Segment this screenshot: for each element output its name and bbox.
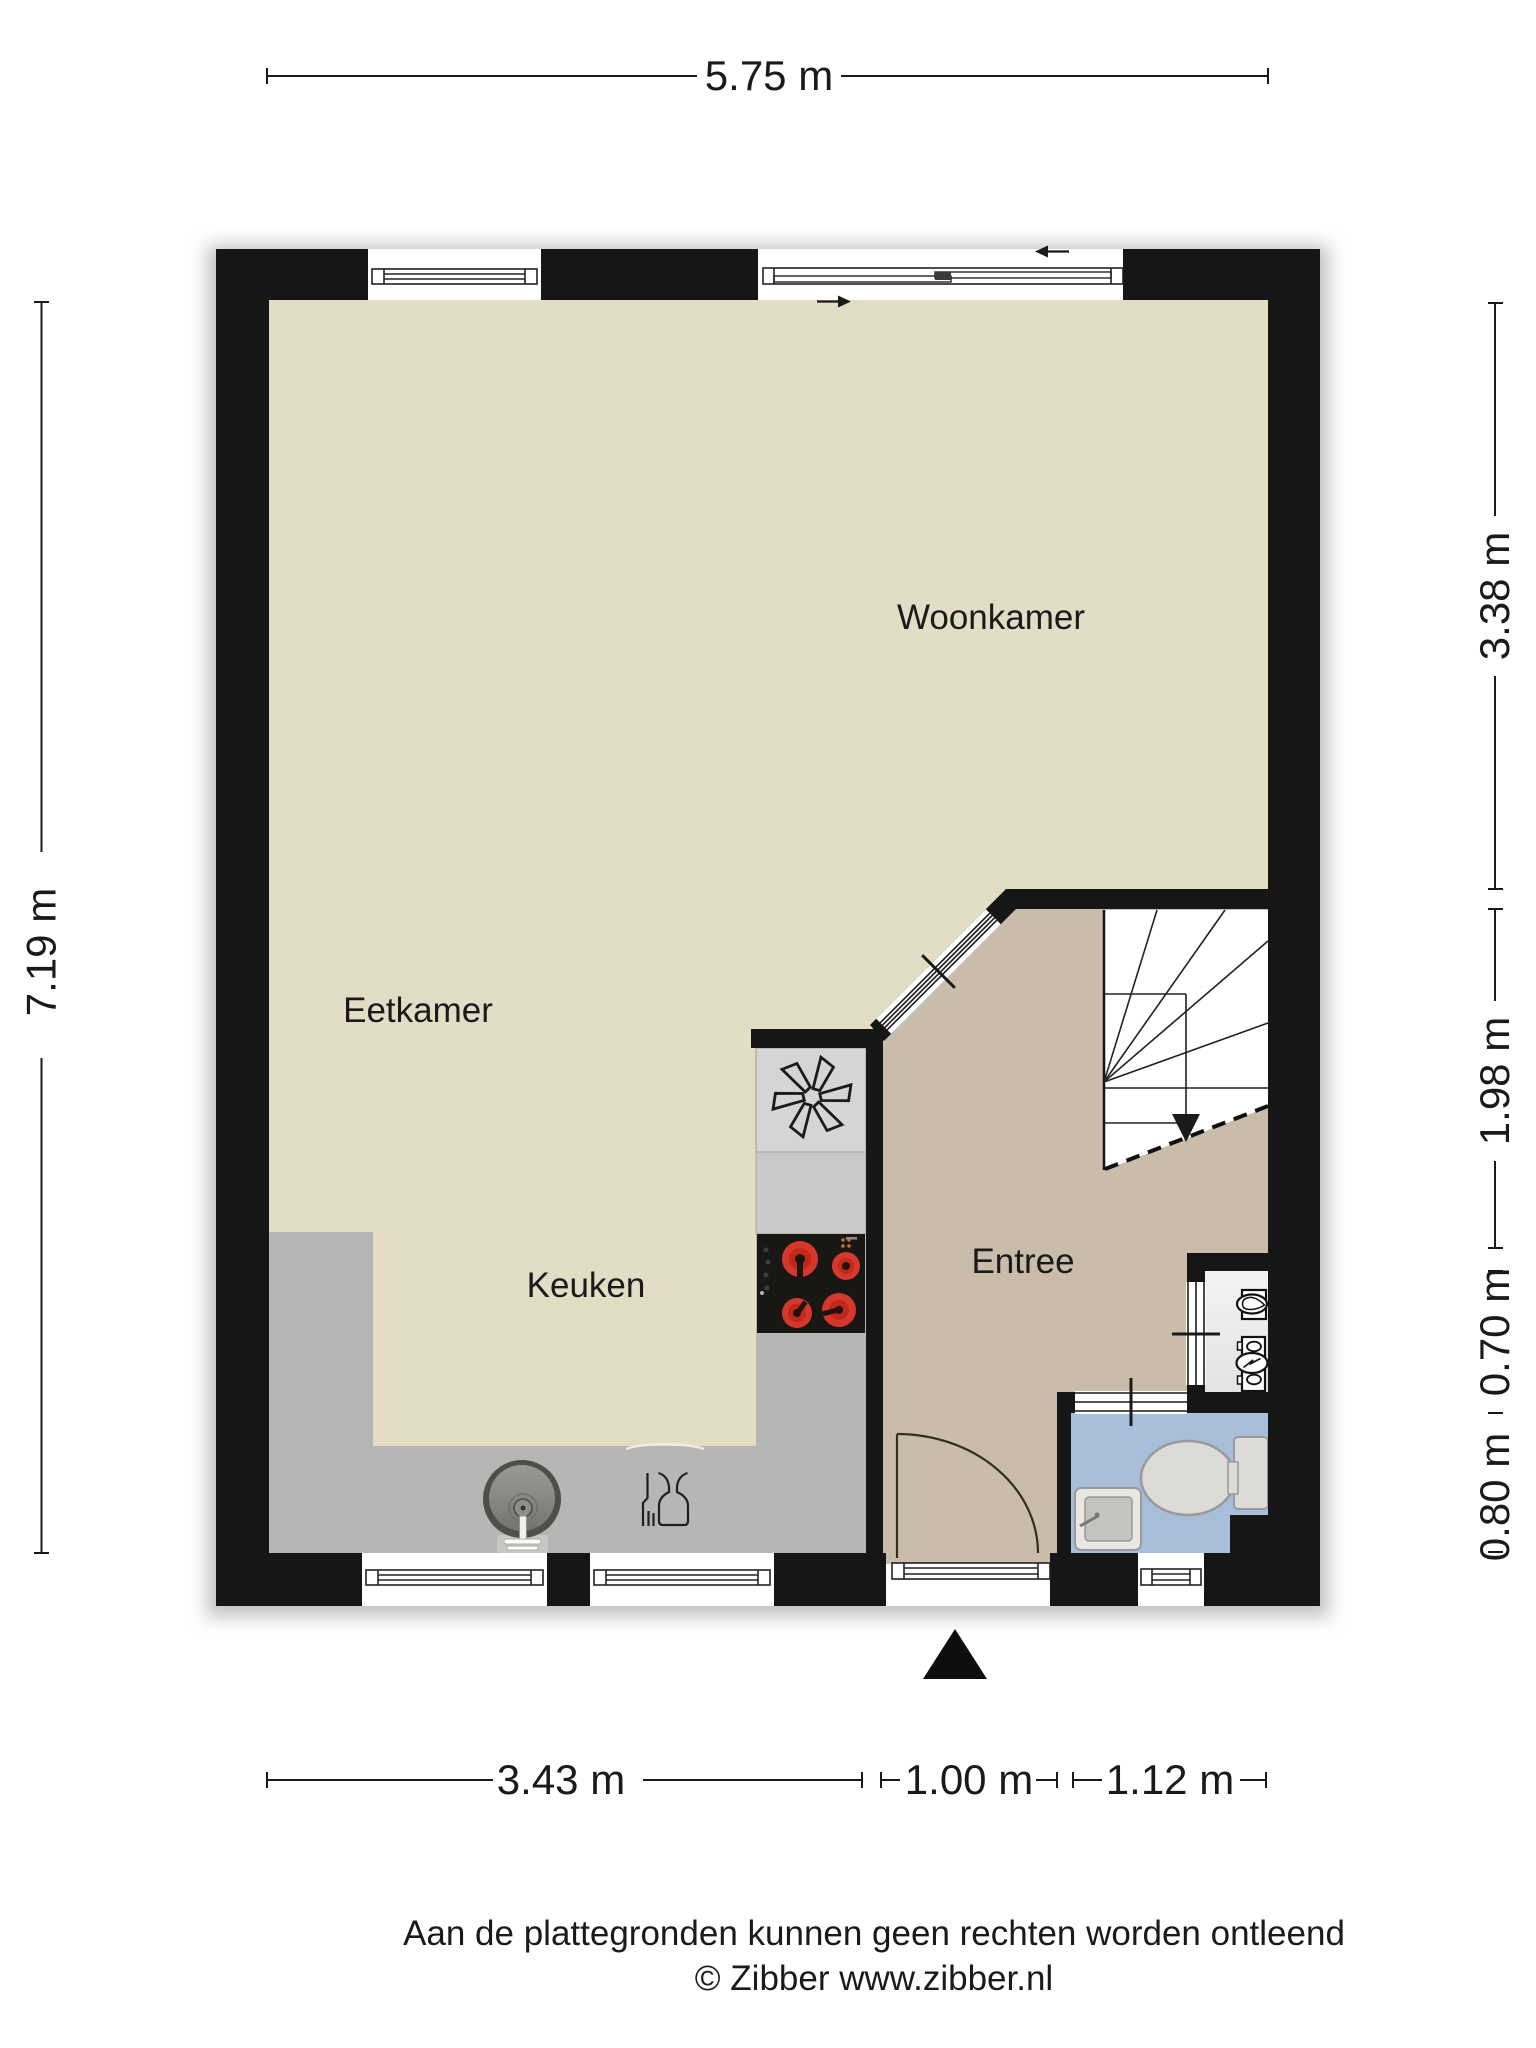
svg-text:3.38 m: 3.38 m xyxy=(1471,532,1518,660)
svg-text:1.98 m: 1.98 m xyxy=(1471,1017,1518,1145)
svg-text:3.43 m: 3.43 m xyxy=(497,1756,625,1803)
svg-text:Entree: Entree xyxy=(971,1242,1074,1281)
svg-text:Woonkamer: Woonkamer xyxy=(897,598,1085,637)
svg-text:5.75 m: 5.75 m xyxy=(705,52,833,99)
svg-text:Aan de plattegronden kunnen ge: Aan de plattegronden kunnen geen rechten… xyxy=(403,1914,1345,1953)
svg-text:1.12 m: 1.12 m xyxy=(1106,1756,1234,1803)
svg-text:7.19 m: 7.19 m xyxy=(18,888,65,1016)
svg-text:0.80 m: 0.80 m xyxy=(1471,1433,1518,1561)
svg-text:© Zibber www.zibber.nl: © Zibber www.zibber.nl xyxy=(695,1959,1053,1998)
svg-text:Keuken: Keuken xyxy=(527,1266,646,1305)
svg-text:0.70 m: 0.70 m xyxy=(1471,1268,1518,1396)
svg-text:1.00 m: 1.00 m xyxy=(905,1756,1033,1803)
svg-text:Eetkamer: Eetkamer xyxy=(343,991,493,1030)
